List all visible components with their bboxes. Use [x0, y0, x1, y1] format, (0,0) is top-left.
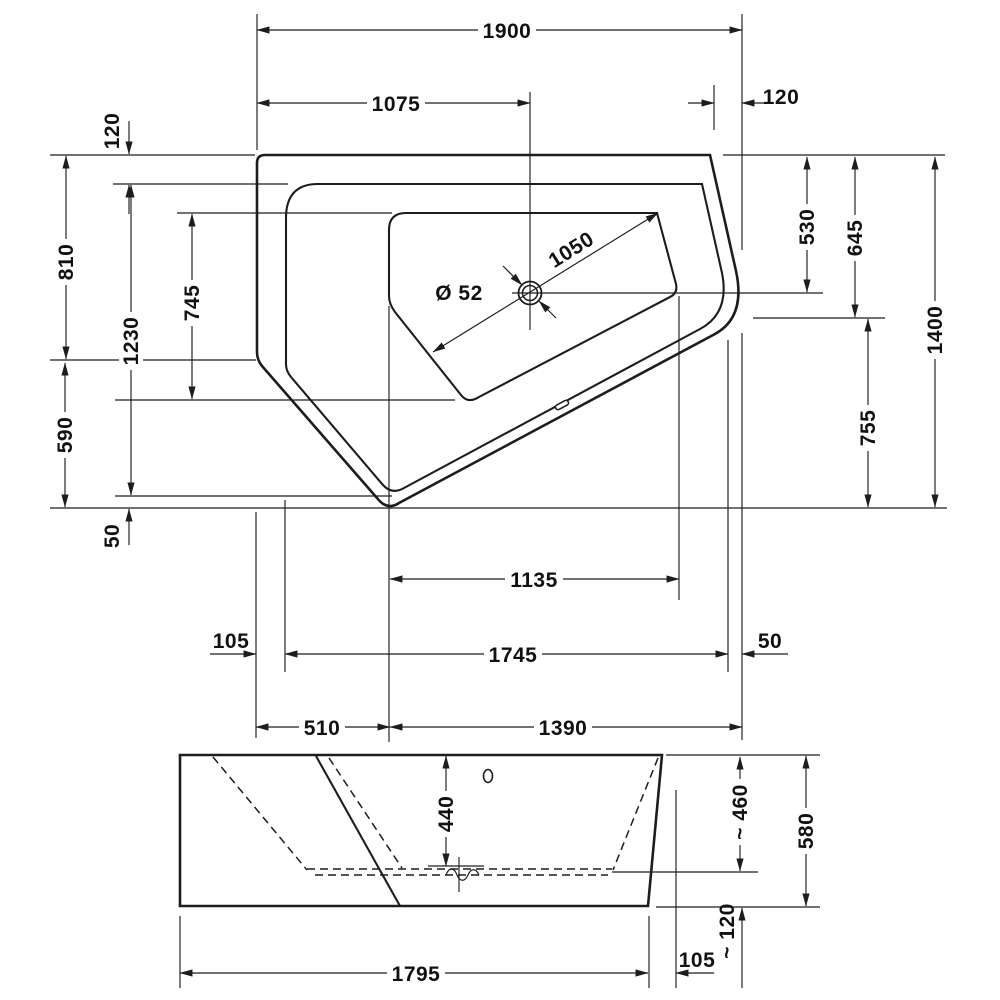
dim-label-590: 590 — [54, 417, 77, 454]
dim-label-1230: 1230 — [120, 317, 143, 366]
dim-left-810: 810 — [54, 156, 78, 359]
dim-label-460: ~ 460 — [729, 784, 752, 840]
dim-depth-440: 440 — [434, 756, 458, 866]
dim-label-1795: 1795 — [392, 963, 441, 986]
dim-label-1400: 1400 — [924, 306, 947, 355]
dim-bottom-1135: 1135 — [390, 568, 679, 592]
dim-right-645: 645 — [843, 157, 867, 317]
dim-label-50-left: 50 — [101, 524, 124, 548]
dim-overall-height: 1400 — [923, 157, 947, 507]
dim-label-105-bottom: 105 — [213, 630, 250, 653]
dim-rim-top-width: 120 — [101, 113, 129, 214]
dim-rim-bottom-offset: 50 — [101, 509, 129, 548]
dim-left-590: 590 — [53, 363, 77, 507]
dim-label-745: 745 — [181, 285, 204, 322]
dim-label-drain-diameter: Ø 52 — [435, 282, 483, 305]
dim-label-440: 440 — [435, 796, 458, 833]
tub-outer-outline — [257, 155, 738, 506]
dim-elev-width: 1795 — [180, 962, 648, 986]
dim-rim-right-width: 50 — [742, 630, 788, 654]
dim-label-510: 510 — [304, 717, 341, 740]
elevation-panel-edge — [316, 756, 400, 906]
dim-label-1900: 1900 — [483, 20, 532, 43]
dim-feet-height: ~ 120 — [716, 903, 742, 988]
dim-drain-offset-y: 530 — [795, 157, 819, 292]
bathtub-technical-drawing: 1900 1075 120 120 810 1230 — [0, 0, 1000, 1000]
dim-label-1390: 1390 — [539, 717, 588, 740]
dim-elev-105: 105 — [676, 949, 715, 973]
plan-view — [257, 155, 738, 506]
dim-label-580: 580 — [795, 813, 818, 850]
elevation-view — [180, 755, 662, 906]
dim-label-feet-120: ~ 120 — [716, 903, 739, 959]
dim-label-645: 645 — [844, 220, 867, 257]
dim-label-120-top: 120 — [763, 86, 800, 109]
dim-overall-height-580: 580 — [794, 756, 818, 906]
drawing-canvas: 1900 1075 120 120 810 1230 — [0, 0, 1000, 1000]
dim-right-755: 755 — [856, 319, 880, 507]
dim-basin-height: 745 — [180, 214, 204, 399]
dim-bottom-510: 510 — [256, 716, 390, 740]
tub-basin-outline — [389, 213, 676, 400]
dim-label-1075: 1075 — [372, 93, 421, 116]
dim-inner-rim-width: 1745 — [285, 643, 728, 667]
dim-label-50-bottom: 50 — [758, 630, 782, 653]
dim-label-105-elev: 105 — [679, 949, 716, 972]
dim-bottom-1390: 1390 — [390, 716, 742, 740]
dim-label-810: 810 — [55, 244, 78, 281]
dim-label-1135: 1135 — [510, 569, 558, 592]
dim-label-755: 755 — [857, 410, 880, 447]
dim-label-530: 530 — [796, 209, 819, 246]
dim-label-1745: 1745 — [489, 644, 538, 667]
dim-inner-height-460: ~ 460 — [728, 757, 752, 871]
dim-inner-rim-height: 1230 — [119, 185, 143, 495]
tub-inner-rim — [286, 184, 724, 491]
elevation-outline — [180, 755, 662, 906]
dim-overall-width: 1900 — [257, 19, 742, 43]
dim-rim-left-width: 105 — [210, 630, 256, 654]
dim-label-120-left: 120 — [101, 113, 124, 150]
dim-corner-cut-width: 120 — [688, 86, 799, 109]
elevation-overflow-hole — [484, 770, 493, 783]
dim-drain-offset-x: 1075 — [257, 92, 530, 116]
overflow-slot — [555, 400, 570, 411]
